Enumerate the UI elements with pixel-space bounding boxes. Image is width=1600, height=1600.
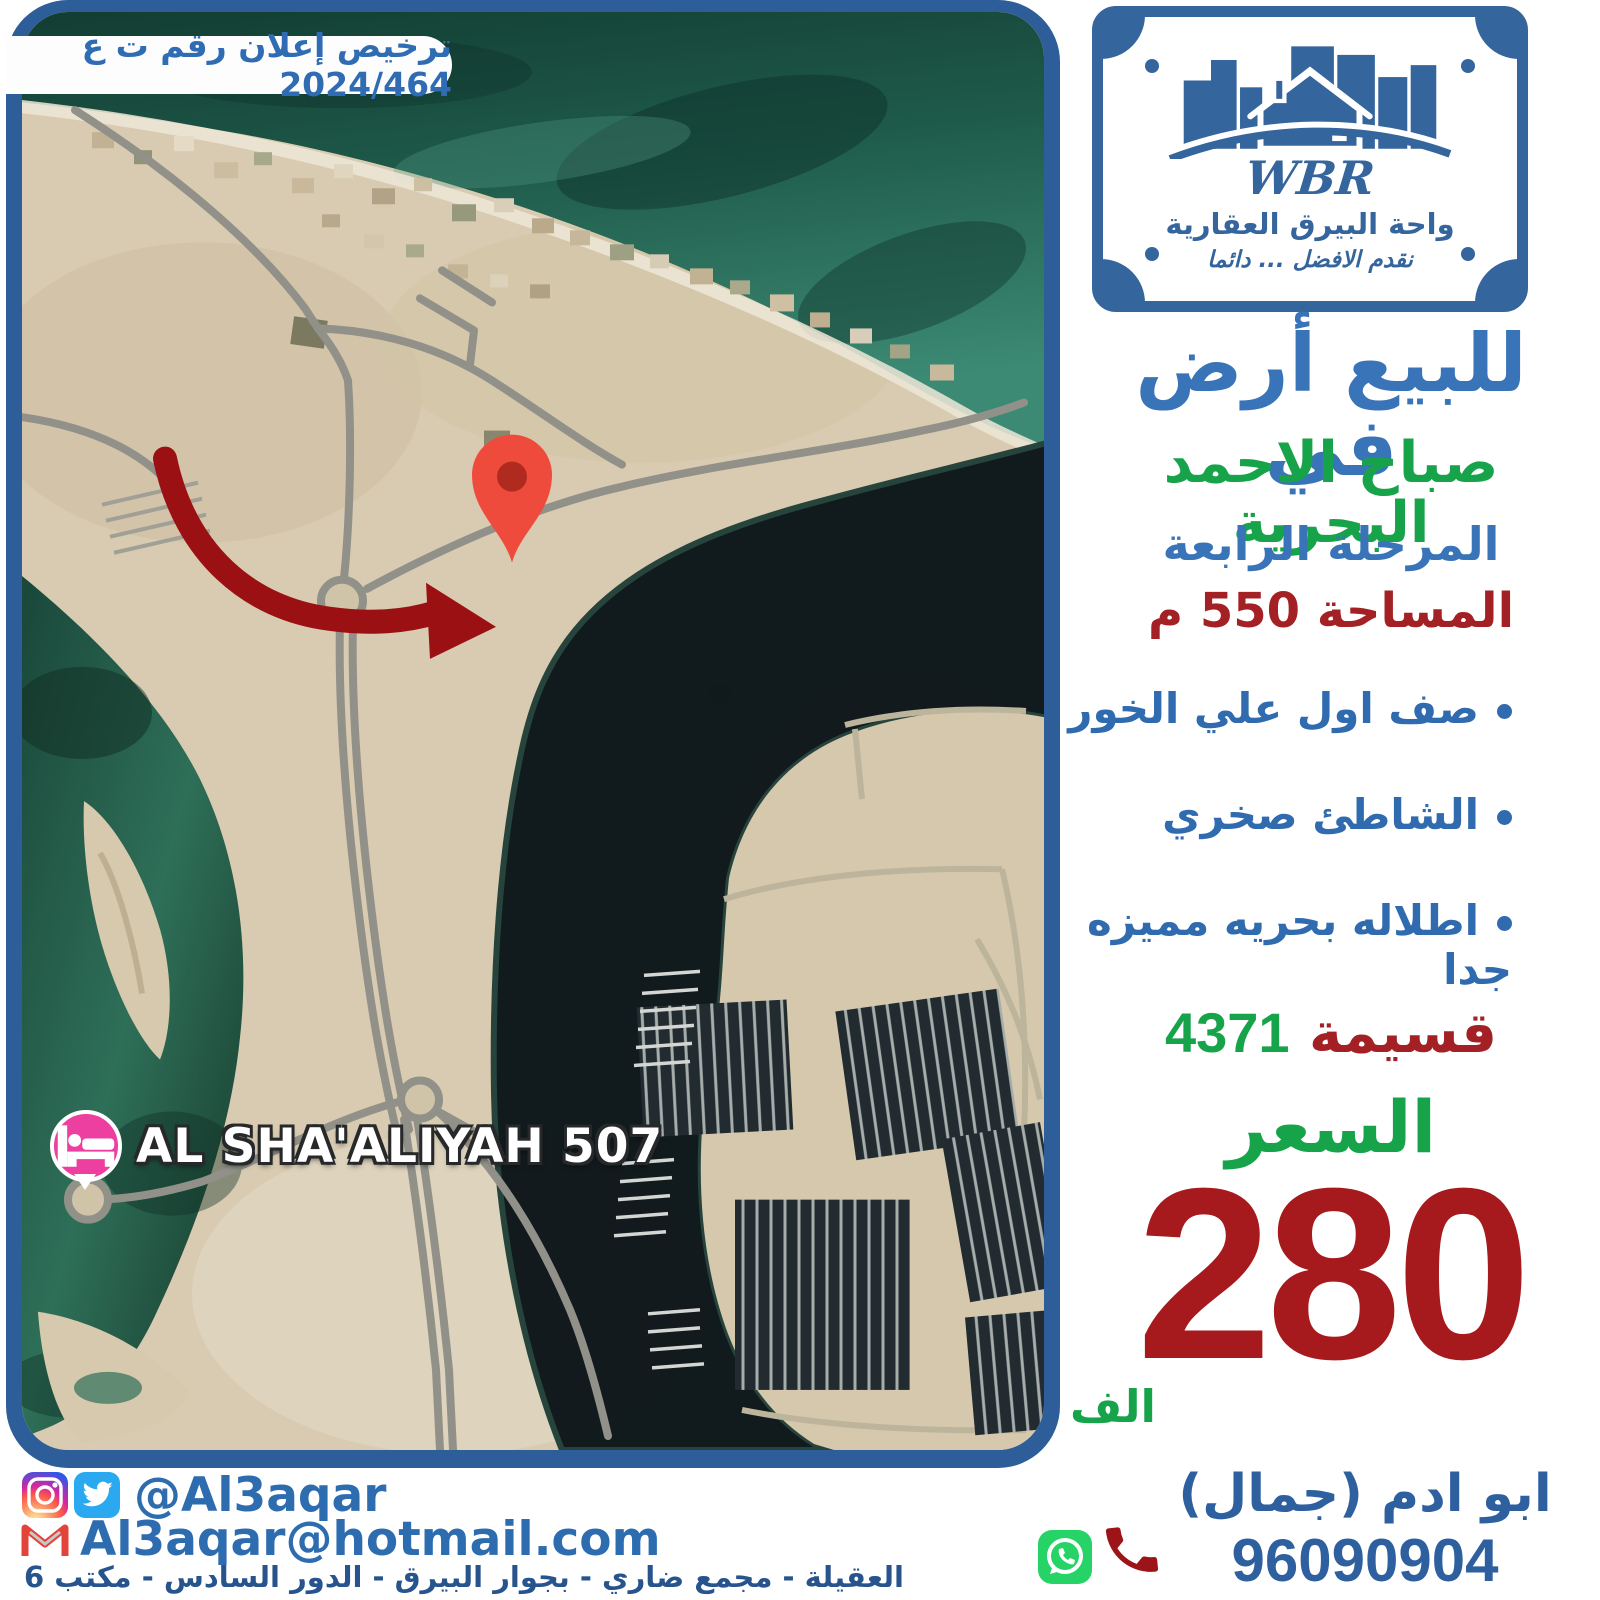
plaque-corner-ornament	[1475, 15, 1519, 59]
satellite-map-art	[22, 12, 1044, 1450]
feature-text: اطلاله بحريه مميزه جدا	[1087, 896, 1512, 994]
plaque-dot	[1145, 247, 1159, 261]
instagram-icon[interactable]	[22, 1472, 68, 1518]
bed-icon	[54, 1114, 118, 1178]
price-value: 280	[1062, 1158, 1600, 1390]
feature-item: صف اول علي الخور	[1062, 684, 1600, 733]
place-name: AL SHA'ALIYAH 507	[136, 1119, 663, 1174]
map-place-label: AL SHA'ALIYAH 507	[50, 1110, 663, 1182]
price-unit: الف	[1070, 1380, 1156, 1433]
license-badge-text: ترخيص إعلان رقم ت ع 2024/464	[6, 26, 452, 104]
hotel-marker-icon[interactable]	[50, 1110, 122, 1182]
listing-area: المساحة 550 م	[1062, 586, 1600, 636]
email-address[interactable]: Al3aqar@hotmail.com	[80, 1512, 661, 1567]
listing-phase: المرحلة الرابعة	[1062, 520, 1600, 568]
plaque-dot	[1145, 59, 1159, 73]
plaque-dot	[1461, 59, 1475, 73]
bullet-icon	[1497, 916, 1512, 931]
gmail-icon[interactable]	[20, 1520, 70, 1560]
bullet-icon	[1497, 810, 1512, 825]
company-logo-plaque: WBR واحة البيرق العقارية نقدم الافضل ...…	[1092, 6, 1528, 312]
feature-item: الشاطئ صخري	[1062, 790, 1600, 839]
plot-line: قسيمة 4371	[1062, 1004, 1600, 1064]
map-panel-frame: AL SHA'ALIYAH 507 ترخيص إعلان رقم ت ع 20…	[6, 0, 1060, 1468]
satellite-map[interactable]: AL SHA'ALIYAH 507	[22, 12, 1044, 1450]
office-address: العقيلة - مجمع ضاري - بجوار البيرق - الد…	[24, 1560, 904, 1594]
plaque-dot	[1461, 247, 1475, 261]
plaque-corner-ornament	[1101, 15, 1145, 59]
bullet-icon	[1497, 704, 1512, 719]
company-tagline: نقدم الافضل ... دائما	[1103, 247, 1517, 273]
feature-text: صف اول علي الخور	[1068, 684, 1479, 733]
phone-icon	[1097, 1515, 1167, 1585]
skyline-house-icon	[1150, 31, 1470, 159]
agent-phone[interactable]: 96090904	[1150, 1526, 1580, 1595]
plot-number: 4371	[1165, 1001, 1290, 1064]
logo-abbr: WBR	[1100, 151, 1520, 205]
ad-canvas: AL SHA'ALIYAH 507 ترخيص إعلان رقم ت ع 20…	[0, 0, 1600, 1600]
feature-item: اطلاله بحريه مميزه جدا	[1062, 896, 1600, 994]
company-name: واحة البيرق العقارية	[1103, 207, 1517, 241]
feature-text: الشاطئ صخري	[1162, 790, 1479, 839]
whatsapp-icon[interactable]	[1038, 1530, 1092, 1584]
license-badge: ترخيص إعلان رقم ت ع 2024/464	[6, 36, 452, 94]
plot-label: قسيمة	[1309, 1001, 1497, 1066]
agent-name: ابو ادم (جمال)	[1150, 1464, 1580, 1524]
